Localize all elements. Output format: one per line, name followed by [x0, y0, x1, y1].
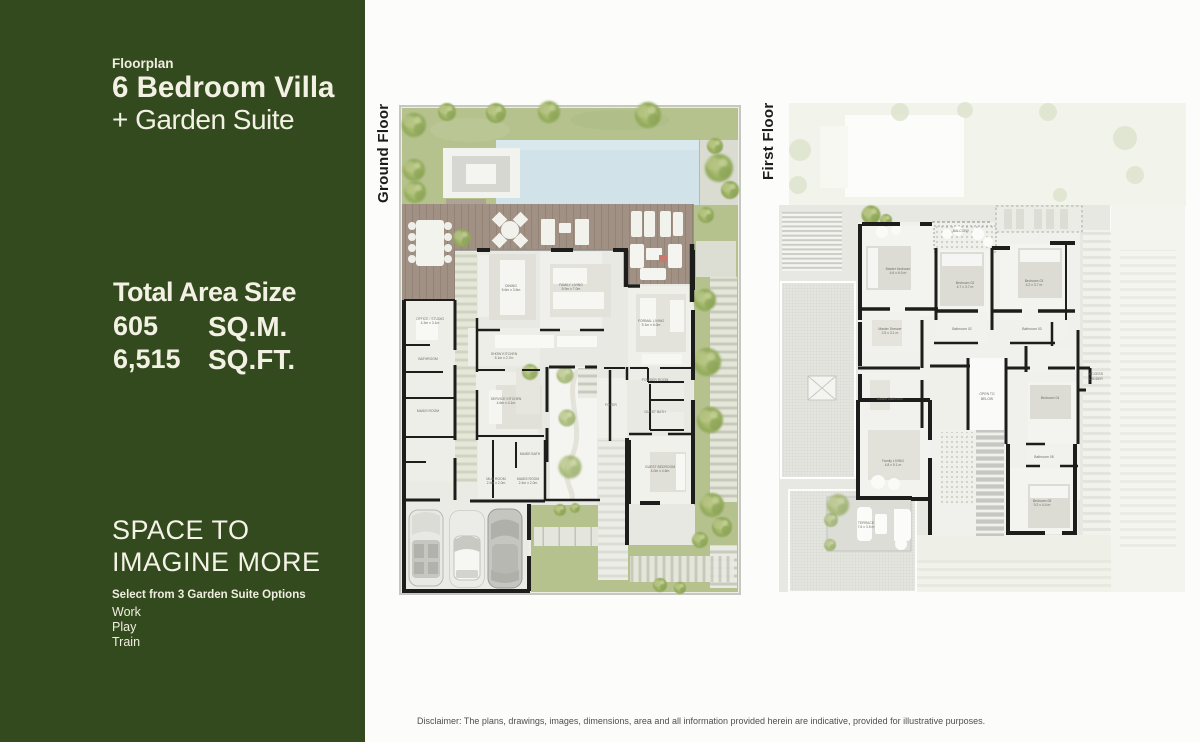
- svg-text:Bathroom 05: Bathroom 05: [1034, 455, 1054, 459]
- svg-text:BELOW: BELOW: [981, 397, 994, 401]
- svg-text:OPEN TO: OPEN TO: [979, 392, 994, 396]
- svg-text:4.8 x 5.1 m: 4.8 x 5.1 m: [885, 463, 902, 467]
- svg-text:7.6 x 3.5 m: 7.6 x 3.5 m: [858, 525, 875, 529]
- svg-text:4.7 x 3.7 m: 4.7 x 3.7 m: [957, 285, 974, 289]
- svg-text:2.5 x 3.1 m: 2.5 x 3.1 m: [882, 331, 899, 335]
- svg-text:Bathroom 02: Bathroom 02: [952, 327, 972, 331]
- svg-text:9.2 x 4.4 m: 9.2 x 4.4 m: [1034, 503, 1051, 507]
- svg-text:Bathroom 03: Bathroom 03: [1022, 327, 1042, 331]
- svg-text:LADDER: LADDER: [1089, 377, 1103, 381]
- svg-text:4.6 x 6.0 m: 4.6 x 6.0 m: [890, 271, 907, 275]
- svg-text:Master Bathroom: Master Bathroom: [877, 397, 903, 401]
- svg-text:4.2 x 3.7 m: 4.2 x 3.7 m: [1026, 283, 1043, 287]
- svg-text:BALCONY: BALCONY: [953, 229, 970, 233]
- svg-text:Bedroom 04: Bedroom 04: [1041, 396, 1060, 400]
- svg-text:ACCESS: ACCESS: [1089, 372, 1104, 376]
